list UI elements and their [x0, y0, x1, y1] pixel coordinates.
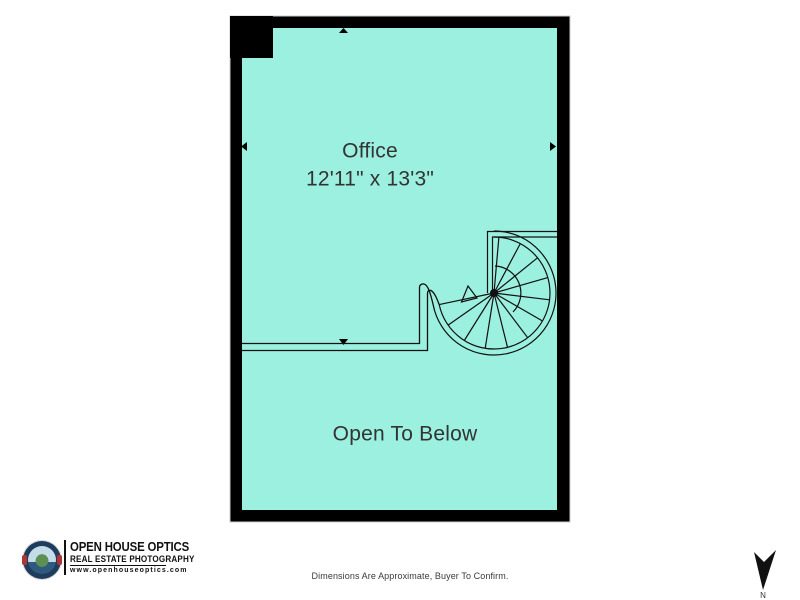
- badge-red-left: [22, 555, 27, 565]
- company-website: www.openhouseoptics.com: [70, 567, 208, 575]
- logo-badge-icon: [23, 541, 61, 579]
- office-room-dimensions: 12'11" x 13'3": [306, 165, 434, 192]
- logo-divider: [70, 565, 166, 566]
- floorplan-drawing: [0, 0, 800, 600]
- north-arrow-icon: N: [748, 547, 782, 599]
- company-tagline: REAL ESTATE PHOTOGRAPHY: [70, 554, 195, 564]
- floorplan-page: Office 12'11" x 13'3" Open To Below OPEN…: [0, 0, 800, 600]
- company-logo: OPEN HOUSE OPTICS REAL ESTATE PHOTOGRAPH…: [23, 540, 208, 579]
- logo-text-block: OPEN HOUSE OPTICS REAL ESTATE PHOTOGRAPH…: [64, 540, 208, 575]
- north-label: N: [760, 591, 766, 599]
- disclaimer-text: Dimensions Are Approximate, Buyer To Con…: [312, 571, 509, 581]
- wall-notch: [230, 16, 273, 58]
- badge-red-right: [57, 555, 62, 565]
- open-to-below-label: Open To Below: [333, 420, 478, 447]
- badge-inner-art: [28, 546, 56, 574]
- company-name: OPEN HOUSE OPTICS: [70, 540, 192, 554]
- stair-newel-post: [490, 289, 498, 297]
- office-room-label: Office: [342, 137, 398, 164]
